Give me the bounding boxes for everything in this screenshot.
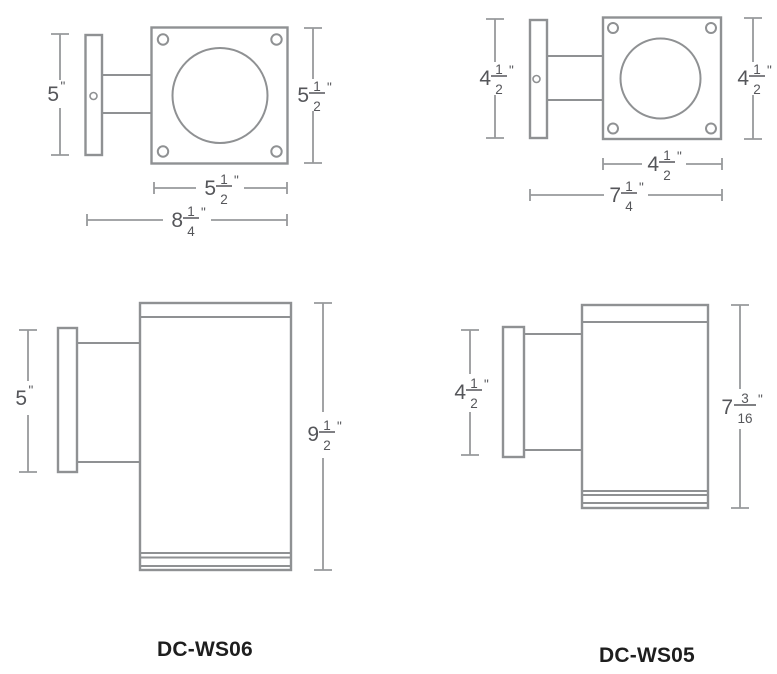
dim-numerator: 1 [495, 62, 503, 77]
dim-numerator: 1 [313, 79, 321, 94]
dim-denominator: 2 [323, 438, 331, 453]
dim-value: 9 [307, 423, 319, 446]
dim-unit: " [484, 377, 489, 392]
dim-value: 5 [297, 84, 309, 107]
dim-denominator: 2 [663, 168, 671, 183]
screw-hole [158, 146, 168, 156]
dim-overall-height: 7 3 16 " [721, 305, 763, 508]
screw-hole [706, 23, 716, 33]
dim-numerator: 1 [753, 62, 761, 77]
dim-overall-depth: 8 1 4 " [87, 204, 287, 239]
dim-face-width: 5 1 2 " [154, 172, 287, 207]
dim-value: 4 [479, 67, 491, 90]
dim-face-height: 5 1 2 " [297, 28, 332, 163]
body-outline [582, 305, 708, 508]
dim-numerator: 1 [663, 148, 671, 163]
dimension-drawing: 5 " 5 1 2 " 5 1 2 " [0, 0, 777, 674]
model-label-ws05: DC-WS05 [599, 644, 695, 667]
dim-face-height: 4 1 2 " [737, 18, 772, 139]
ws06-top-view: 5 " 5 1 2 " 5 1 2 " [47, 28, 332, 240]
dim-value: 7 [721, 396, 733, 419]
dim-denominator: 2 [220, 192, 228, 207]
dim-unit: " [61, 79, 66, 94]
dim-backplate-height: 4 1 2 " [479, 19, 514, 138]
dim-value: 5 [15, 387, 27, 410]
screw-hole [608, 23, 618, 33]
mounting-hole [90, 93, 97, 100]
dim-numerator: 1 [220, 172, 228, 187]
dim-numerator: 1 [470, 376, 478, 391]
dim-denominator: 16 [737, 411, 752, 426]
dim-denominator: 2 [313, 99, 321, 114]
dim-value: 4 [647, 153, 659, 176]
dim-unit: " [767, 63, 772, 78]
dim-value: 5 [47, 83, 59, 106]
dim-denominator: 2 [753, 82, 761, 97]
dim-denominator: 2 [470, 396, 478, 411]
diagram-canvas: 5 " 5 1 2 " 5 1 2 " [0, 0, 777, 674]
lens-circle [173, 48, 268, 143]
dim-unit: " [234, 173, 239, 188]
dim-backplate-height: 5 " [15, 330, 37, 472]
screw-hole [706, 124, 716, 134]
screw-hole [271, 34, 281, 44]
dim-numerator: 1 [323, 418, 331, 433]
dim-denominator: 2 [495, 82, 503, 97]
dim-backplate-height: 4 1 2 " [454, 330, 489, 455]
dim-unit: " [509, 63, 514, 78]
dim-unit: " [337, 419, 342, 434]
dim-numerator: 3 [741, 391, 749, 406]
backplate-outline [503, 327, 524, 457]
mounting-hole [533, 76, 540, 83]
dim-value: 8 [171, 209, 183, 232]
dim-unit: " [29, 383, 34, 398]
screw-hole [608, 124, 618, 134]
dim-backplate-height: 5 " [47, 34, 69, 155]
ws05-side-view: 4 1 2 " 7 3 16 " [454, 305, 763, 508]
screw-hole [158, 34, 168, 44]
dim-value: 4 [737, 67, 749, 90]
dim-unit: " [639, 180, 644, 195]
body-outline [140, 303, 291, 570]
dim-unit: " [758, 392, 763, 407]
screw-hole [271, 146, 281, 156]
dim-numerator: 1 [625, 179, 633, 194]
backplate-outline [58, 328, 77, 472]
lens-circle [621, 39, 701, 119]
model-label-ws06: DC-WS06 [157, 638, 253, 661]
dim-denominator: 4 [187, 224, 195, 239]
dim-value: 7 [609, 184, 621, 207]
dim-denominator: 4 [625, 199, 633, 214]
dim-unit: " [201, 205, 206, 220]
dim-unit: " [677, 149, 682, 164]
dim-face-width: 4 1 2 " [603, 148, 722, 183]
dim-value: 5 [204, 177, 216, 200]
backplate-outline [86, 35, 103, 155]
dim-unit: " [327, 80, 332, 95]
ws06-side-view: 5 " 9 1 2 " [15, 303, 342, 570]
ws05-top-view: 4 1 2 " 4 1 2 " 4 1 2 " [479, 18, 772, 215]
dim-numerator: 1 [187, 204, 195, 219]
dim-overall-height: 9 1 2 " [307, 303, 342, 570]
dim-value: 4 [454, 381, 466, 404]
dim-overall-depth: 7 1 4 " [530, 179, 722, 214]
